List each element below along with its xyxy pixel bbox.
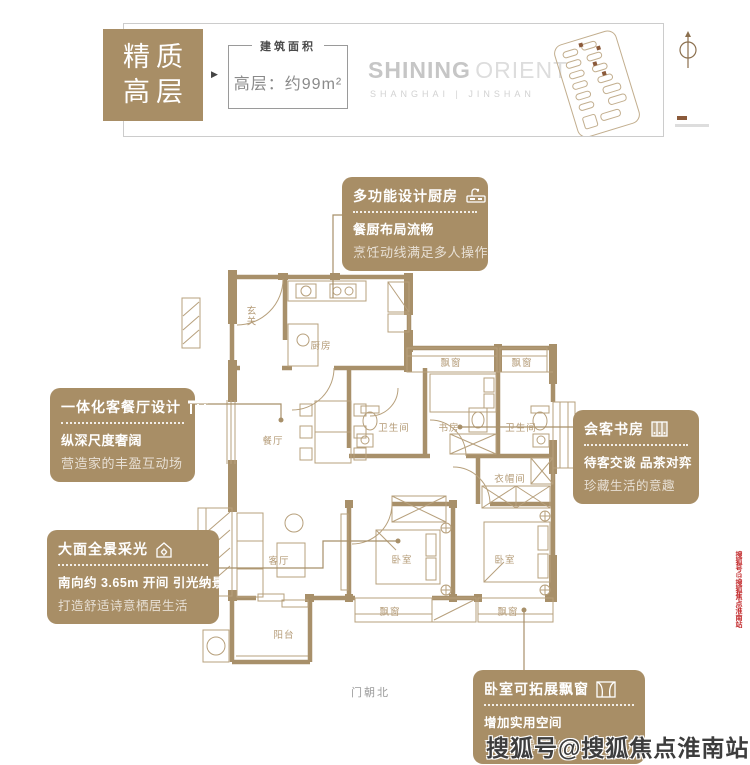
bookshelf-icon: [651, 421, 668, 437]
plan-walls: [232, 277, 553, 662]
room-label-bath2: 卫生间: [505, 422, 537, 434]
room-label-cloak: 衣帽间: [494, 473, 526, 485]
callout-daylight: 大面全景采光 南向约 3.65m 开间 引光纳景 打造舒适诗意栖居生活: [47, 530, 219, 624]
callout-kitchen: 多功能设计厨房 餐厨布局流畅 烹饪动线满足多人操作: [342, 177, 488, 271]
room-label-entry: 玄关: [245, 305, 257, 327]
room-label-kitchen: 厨房: [310, 340, 331, 352]
sink-icon: [465, 188, 487, 204]
callout-study: 会客书房 待客交谈 品茶对弈 珍藏生活的意趣: [573, 410, 699, 504]
callout-baywindow-title: 卧室可拓展飘窗: [484, 679, 589, 699]
callout-dining-title: 一体化客餐厅设计: [61, 397, 181, 417]
callout-connectors: [195, 215, 573, 670]
callout-daylight-line2: 打造舒适诗意栖居生活: [58, 595, 208, 614]
callout-dining: 一体化客餐厅设计 纵深尺度奢阔 营造家的丰盈互动场: [50, 388, 195, 482]
floor-plan: 玄关 厨房 餐厅 客厅 阳台 卧室 卧室 书房 卫生间 卫生间 衣帽间 飘窗 飘…: [0, 0, 750, 765]
house-sun-icon: [155, 541, 173, 558]
plan-details: [182, 279, 575, 662]
room-label-living: 客厅: [268, 555, 289, 567]
bay-label-3: 飘窗: [379, 606, 400, 618]
callout-study-title: 会客书房: [584, 419, 644, 439]
door-direction-note: 门朝北: [351, 684, 390, 700]
callout-kitchen-title: 多功能设计厨房: [353, 186, 458, 206]
bay-label-1: 飘窗: [440, 357, 461, 369]
page: 精质 高层 ▶ 建筑面积 高层：约99m² SHINING ORIENT SHA…: [0, 0, 750, 765]
table-icon: [188, 400, 208, 415]
curtain-window-icon: [596, 681, 616, 698]
room-label-bedroom1: 卧室: [391, 554, 412, 566]
bay-label-2: 飘窗: [511, 357, 532, 369]
watermark-bottom: 搜狐号@搜狐焦点淮南站: [486, 729, 749, 763]
callout-study-line2: 珍藏生活的意趣: [584, 475, 688, 494]
room-label-bedroom2: 卧室: [494, 554, 515, 566]
callout-dining-line2: 营造家的丰盈互动场: [61, 453, 184, 472]
connector-dots: [279, 418, 527, 613]
callout-kitchen-line1: 餐厨布局流畅: [353, 219, 477, 238]
room-label-study: 书房: [438, 422, 459, 434]
callout-daylight-line1: 南向约 3.65m 开间 引光纳景: [58, 572, 208, 591]
room-label-bath1: 卫生间: [378, 422, 410, 434]
watermark-side: 搜狐号@搜狐焦点淮南站: [735, 551, 742, 628]
callout-study-line1: 待客交谈 品茶对弈: [584, 452, 688, 471]
room-label-balcony: 阳台: [273, 629, 294, 641]
callout-daylight-title: 大面全景采光: [58, 539, 148, 559]
bay-label-4: 飘窗: [497, 606, 518, 618]
callout-dining-line1: 纵深尺度奢阔: [61, 430, 184, 449]
room-label-dining: 餐厅: [262, 435, 283, 447]
callout-kitchen-line2: 烹饪动线满足多人操作: [353, 242, 477, 261]
